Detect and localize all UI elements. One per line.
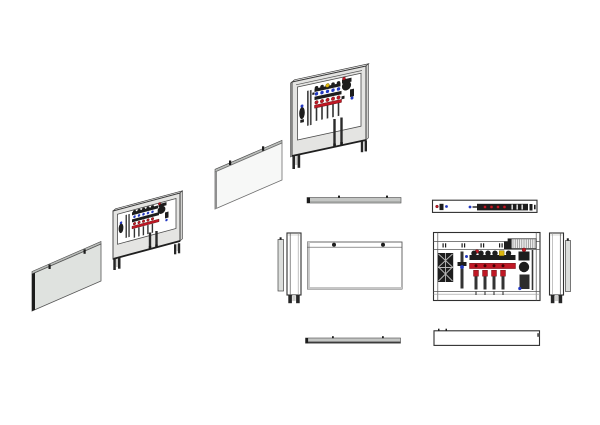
cabinet-feet: [551, 295, 562, 303]
front-view-cabinet: [434, 233, 541, 301]
bottom-view-cabinet: [434, 329, 540, 346]
technical-drawing: [0, 0, 600, 425]
side-view-right: [550, 233, 571, 303]
cabinet-side-profile: [287, 233, 301, 295]
cabinet-side-profile: [550, 233, 564, 295]
din-rail: [508, 239, 536, 249]
side-view-left: [278, 233, 301, 303]
iso-small-cover-panel: [32, 242, 101, 312]
top-view-cover-panel: [307, 196, 401, 203]
front-view-cover-panel: [308, 242, 403, 289]
wall-bracket-lattice: [438, 253, 453, 282]
cabinet-feet: [288, 295, 299, 303]
cover-edge-strip: [566, 238, 571, 291]
bottom-view-cover-panel: [306, 336, 401, 343]
cover-edge-strip: [278, 237, 284, 291]
drawing-canvas: [0, 0, 600, 425]
iso-large-cabinet: [291, 64, 369, 169]
top-view-cabinet: [433, 200, 538, 212]
iso-large-cover-panel: [215, 140, 282, 209]
iso-small-cabinet: [113, 191, 183, 270]
